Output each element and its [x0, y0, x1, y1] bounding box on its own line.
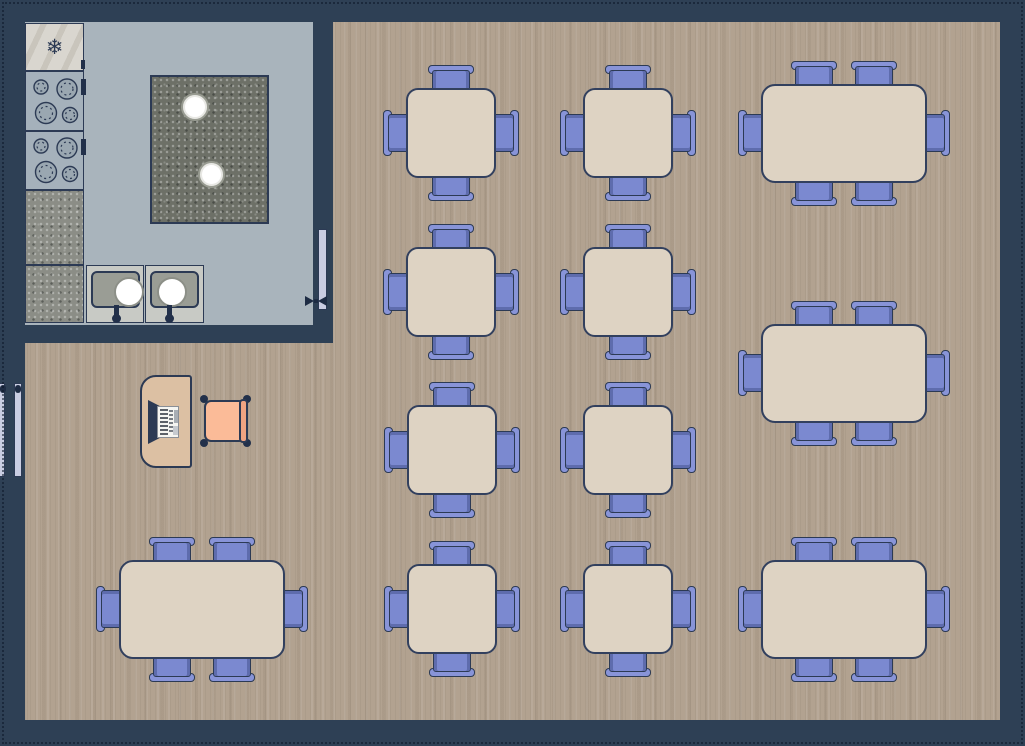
square-table-4-seats[interactable] [583, 405, 673, 495]
square-table-4-seats[interactable] [583, 564, 673, 654]
refrigerator[interactable]: ❄ [25, 23, 84, 71]
square-table-4-seats[interactable] [406, 88, 496, 178]
host-chair[interactable] [202, 397, 250, 445]
kitchen-counter-1[interactable] [25, 190, 84, 265]
square-table-4-seats[interactable] [583, 247, 673, 337]
chair-backrest [239, 399, 248, 443]
register-panel [157, 406, 179, 438]
rect-table-6-seats[interactable] [761, 560, 927, 659]
rect-table-6-seats[interactable] [119, 560, 285, 659]
square-table-4-seats[interactable] [407, 405, 497, 495]
sink-bowl [114, 277, 144, 307]
floor-plan-canvas: ❄ [0, 0, 1025, 746]
fridge-handle [81, 60, 85, 69]
square-table-4-seats[interactable] [407, 564, 497, 654]
pot-icon [181, 93, 209, 121]
entrance-door-outer[interactable] [0, 383, 5, 477]
door-hinge-icon [0, 385, 6, 393]
kitchen-island[interactable] [150, 75, 269, 224]
register-tray [173, 426, 178, 435]
sink-bowl [157, 277, 187, 307]
kitchen-counter-2[interactable] [25, 265, 84, 323]
kitchen-sink-2[interactable] [145, 265, 204, 323]
pot-icon [198, 161, 225, 188]
stove-handle [81, 79, 86, 95]
burners-icon [26, 72, 83, 130]
register-screen [174, 410, 178, 423]
kitchen-sink-1[interactable] [86, 265, 144, 323]
snowflake-icon: ❄ [46, 37, 64, 58]
door-hinge-icon [15, 385, 21, 393]
faucet-icon [165, 314, 174, 323]
cash-register[interactable] [148, 398, 181, 446]
stove-handle [81, 139, 86, 155]
faucet-icon [112, 314, 121, 323]
kitchen-floor[interactable]: ❄ [25, 22, 313, 325]
rect-table-6-seats[interactable] [761, 84, 927, 183]
stove-top-2[interactable] [25, 131, 84, 190]
rect-table-6-seats[interactable] [761, 324, 927, 423]
square-table-4-seats[interactable] [583, 88, 673, 178]
door-hinge-icon [304, 295, 328, 307]
square-table-4-seats[interactable] [406, 247, 496, 337]
register-keys [160, 409, 168, 435]
entrance-door-inner[interactable] [14, 383, 22, 477]
stove-top-1[interactable] [25, 71, 84, 131]
burners-icon [26, 132, 83, 189]
